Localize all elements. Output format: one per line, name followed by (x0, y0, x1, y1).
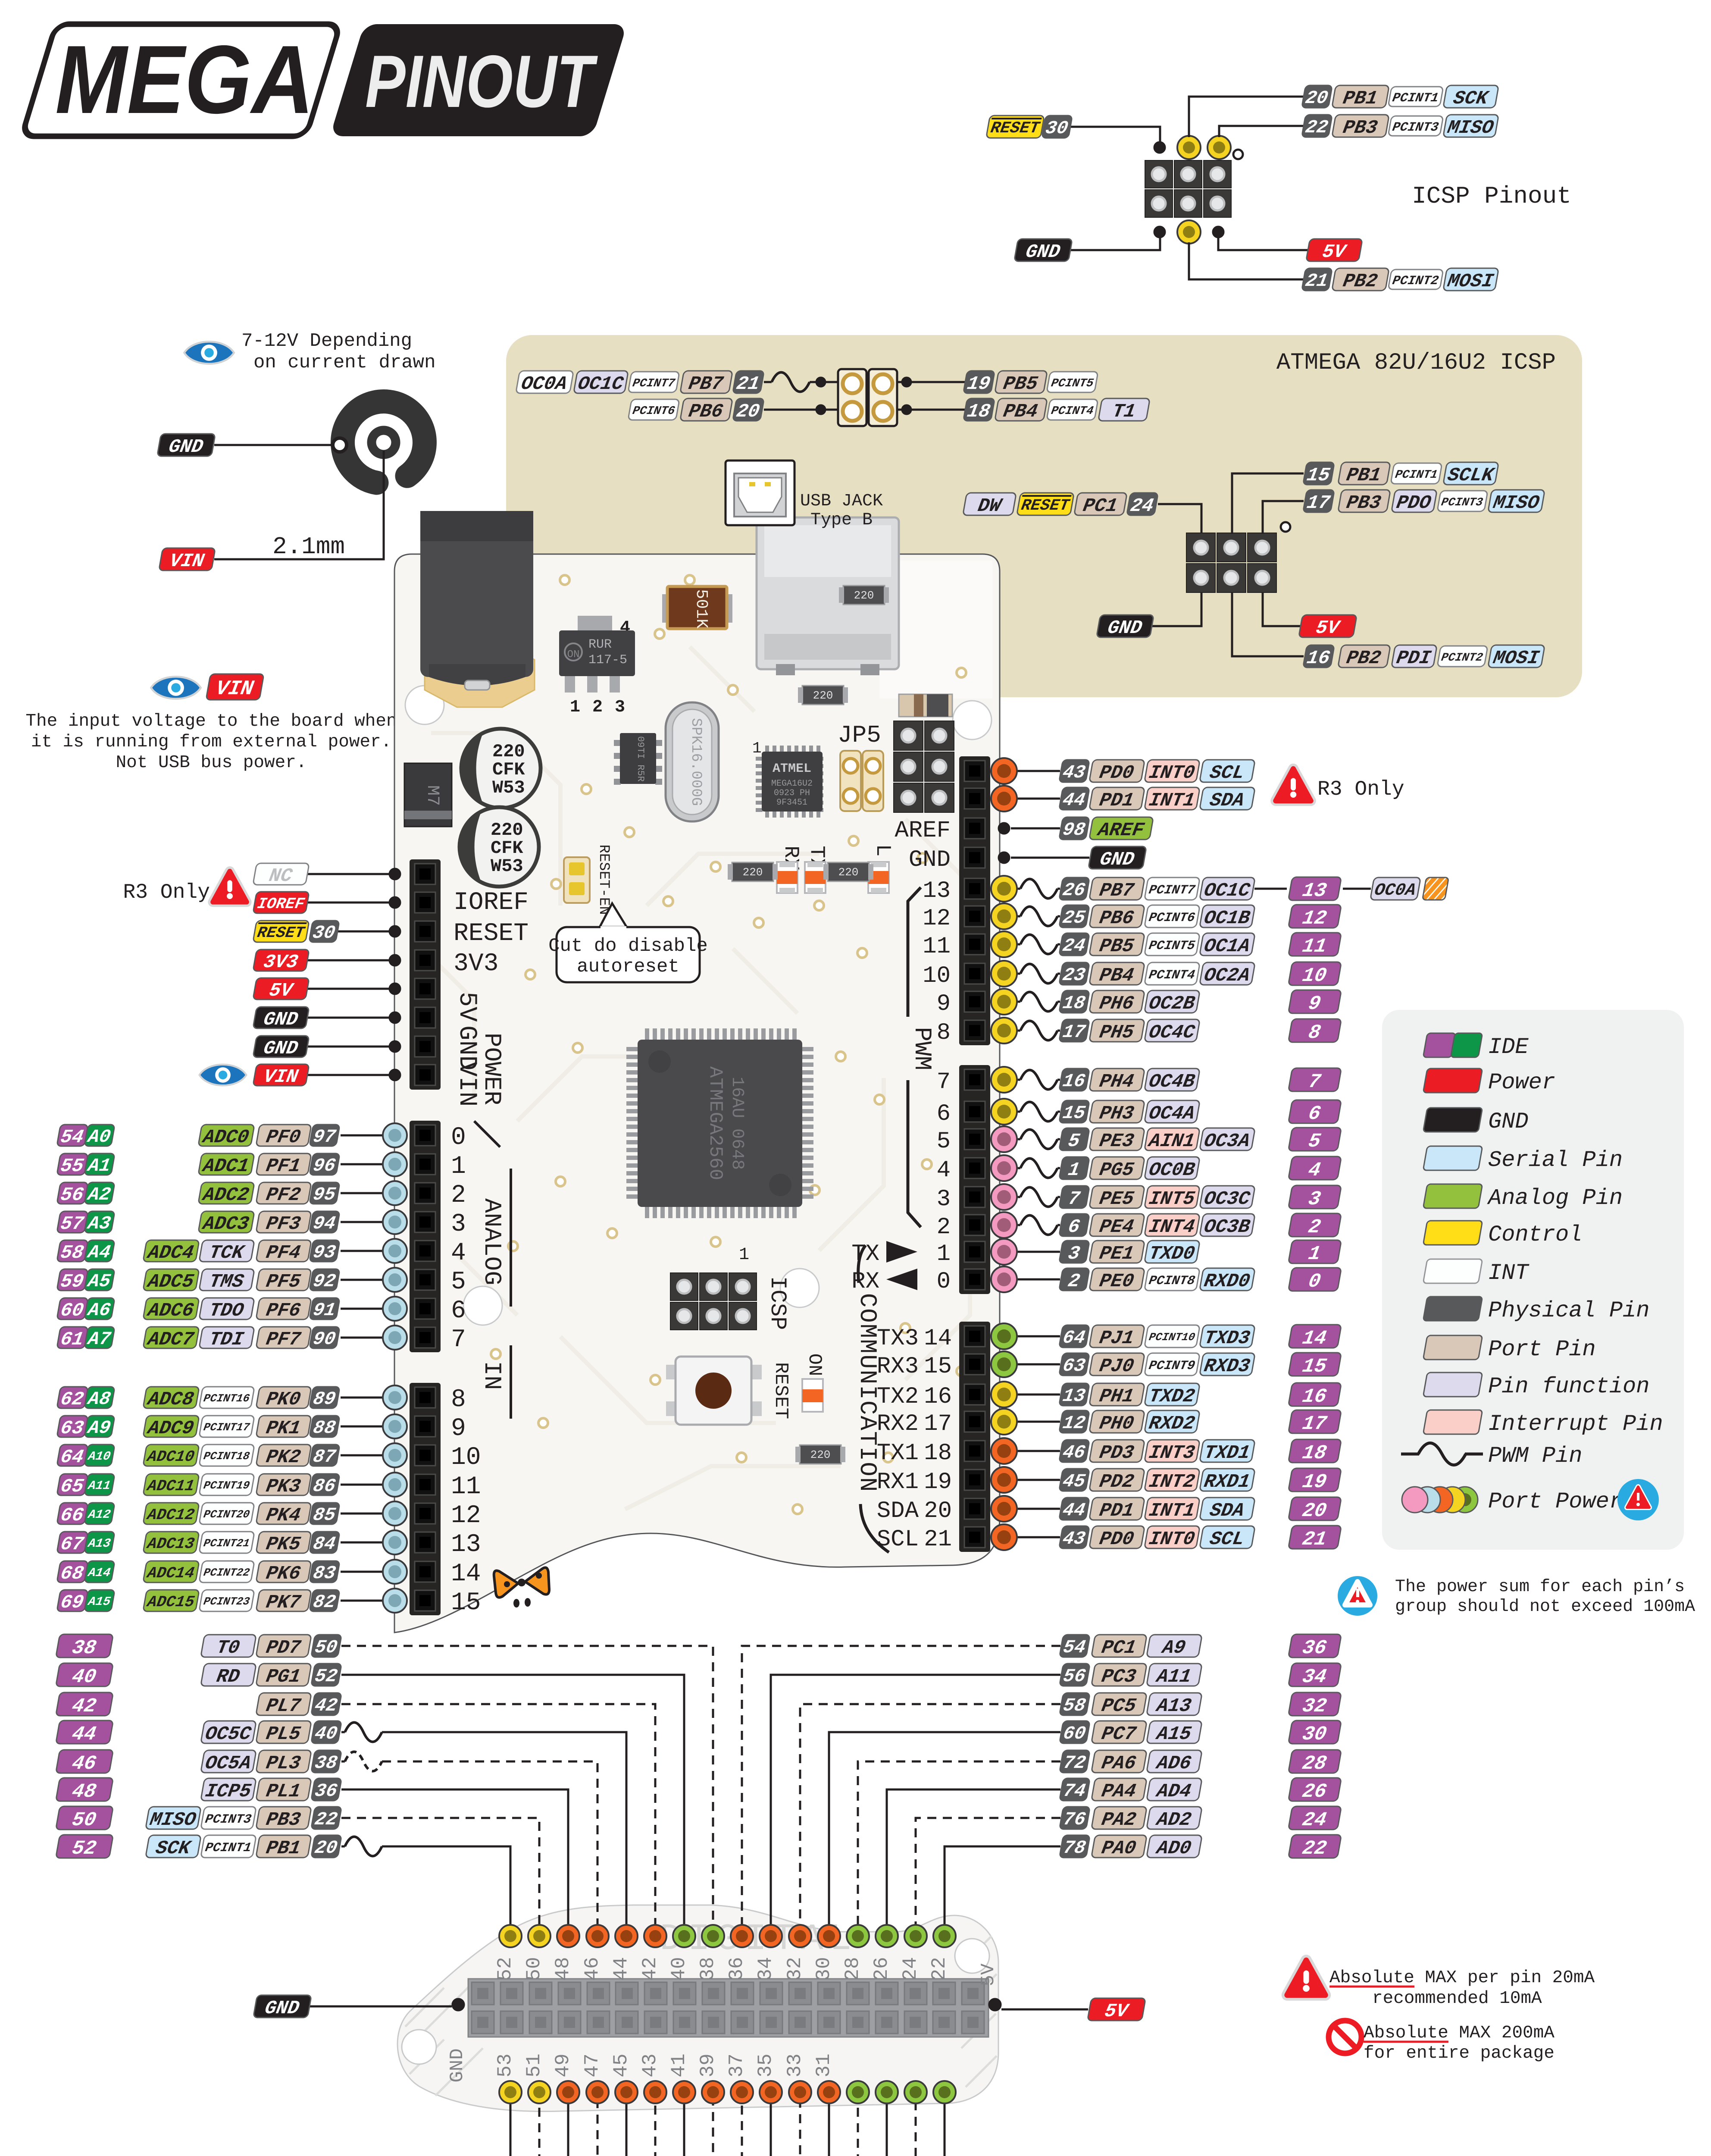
svg-text:Serial Pin: Serial Pin (1488, 1147, 1623, 1173)
svg-text:87: 87 (311, 1446, 338, 1467)
svg-text:64: 64 (1061, 1327, 1087, 1348)
svg-text:220: 220 (813, 689, 833, 702)
svg-text:86: 86 (311, 1476, 337, 1497)
svg-text:PD3: PD3 (1098, 1442, 1135, 1464)
svg-text:VIN: VIN (214, 677, 256, 701)
svg-text:36: 36 (726, 1957, 748, 1981)
svg-text:24: 24 (899, 1957, 922, 1981)
svg-text:21: 21 (924, 1526, 952, 1553)
svg-text:INT1: INT1 (1147, 1500, 1196, 1522)
svg-text:GND: GND (167, 436, 205, 458)
svg-text:19: 19 (1301, 1470, 1328, 1493)
svg-text:OC1B: OC1B (1202, 908, 1252, 929)
svg-text:220: 220 (743, 866, 763, 879)
svg-text:ICSP Pinout: ICSP Pinout (1412, 182, 1571, 210)
svg-text:POWER: POWER (478, 1033, 506, 1105)
svg-text:PF4: PF4 (264, 1242, 302, 1264)
svg-text:26: 26 (1061, 880, 1087, 901)
svg-text:PF2: PF2 (264, 1185, 302, 1206)
svg-text:IOREF: IOREF (256, 895, 306, 913)
svg-text:INT0: INT0 (1147, 1529, 1196, 1550)
svg-text:PCINT5: PCINT5 (1050, 377, 1095, 390)
svg-text:A9: A9 (85, 1417, 112, 1438)
svg-text:PK5: PK5 (264, 1534, 302, 1555)
svg-text:Physical Pin: Physical Pin (1488, 1298, 1649, 1323)
svg-text:PB5: PB5 (1098, 936, 1135, 957)
svg-text:20: 20 (1304, 88, 1329, 109)
svg-text:20: 20 (313, 1837, 339, 1858)
svg-text:PCINT2: PCINT2 (1440, 652, 1484, 664)
svg-text:25: 25 (1061, 907, 1087, 928)
svg-text:3: 3 (937, 1186, 951, 1213)
svg-text:8: 8 (937, 1020, 951, 1046)
svg-text:MOSI: MOSI (1491, 648, 1541, 669)
svg-text:PB5: PB5 (1001, 373, 1039, 395)
svg-text:PCINT5: PCINT5 (1148, 938, 1196, 953)
svg-text:PB7: PB7 (687, 373, 725, 395)
svg-text:PC1: PC1 (1081, 495, 1119, 517)
svg-text:72: 72 (1061, 1752, 1087, 1774)
svg-text:PCINT6: PCINT6 (1148, 910, 1196, 925)
svg-text:RXD1: RXD1 (1202, 1471, 1251, 1493)
svg-text:12: 12 (923, 906, 951, 932)
svg-text:MOSI: MOSI (1445, 271, 1495, 292)
svg-text:1: 1 (937, 1241, 951, 1267)
svg-text:R3 Only: R3 Only (123, 881, 210, 904)
svg-text:PE0: PE0 (1098, 1271, 1135, 1292)
svg-text:24: 24 (1129, 495, 1155, 517)
svg-text:59: 59 (59, 1271, 85, 1293)
svg-text:50: 50 (523, 1957, 545, 1981)
svg-text:9: 9 (451, 1415, 466, 1443)
svg-text:30: 30 (311, 922, 337, 943)
svg-text:PB6: PB6 (1098, 908, 1135, 929)
svg-text:PWM Pin: PWM Pin (1488, 1443, 1582, 1469)
svg-text:GND: GND (262, 1009, 300, 1031)
svg-text:15: 15 (1305, 465, 1332, 486)
svg-text:ICSP: ICSP (765, 1276, 790, 1330)
svg-text:PCINT8: PCINT8 (1148, 1273, 1196, 1288)
svg-text:A7: A7 (85, 1329, 113, 1350)
svg-text:38: 38 (313, 1752, 339, 1774)
svg-text:17: 17 (1305, 492, 1332, 514)
svg-text:MEGA: MEGA (55, 25, 314, 134)
svg-text:6: 6 (451, 1297, 466, 1325)
svg-text:RESET: RESET (454, 920, 529, 948)
svg-text:13: 13 (1061, 1385, 1087, 1407)
svg-text:NC: NC (267, 865, 294, 887)
svg-text:56: 56 (1061, 1666, 1087, 1687)
svg-text:PCINT2: PCINT2 (1391, 273, 1440, 288)
svg-text:PG5: PG5 (1098, 1159, 1135, 1181)
svg-text:90: 90 (311, 1329, 337, 1350)
svg-text:COMMUNICATION: COMMUNICATION (854, 1293, 881, 1493)
svg-text:95: 95 (311, 1184, 337, 1205)
svg-text:ON: ON (804, 1354, 825, 1376)
svg-text:0: 0 (451, 1124, 466, 1152)
svg-text:A15: A15 (1154, 1724, 1193, 1745)
svg-text:ADC8: ADC8 (145, 1389, 195, 1410)
svg-text:GND: GND (909, 847, 951, 873)
svg-text:RX1: RX1 (877, 1469, 919, 1495)
svg-text:USB JACK: USB JACK (800, 492, 883, 511)
svg-text:16: 16 (924, 1384, 952, 1410)
svg-text:52: 52 (70, 1837, 98, 1860)
svg-text:ADC5: ADC5 (145, 1271, 195, 1293)
svg-text:09TI R5R: 09TI R5R (635, 736, 646, 782)
svg-text:21: 21 (735, 373, 761, 395)
svg-text:PCINT19: PCINT19 (203, 1479, 251, 1492)
svg-text:TX: TX (851, 1241, 879, 1267)
svg-text:OC1C: OC1C (1202, 880, 1252, 902)
svg-text:ADC13: ADC13 (145, 1535, 196, 1553)
svg-text:VIN: VIN (262, 1066, 300, 1088)
svg-text:TXD3: TXD3 (1202, 1328, 1251, 1349)
svg-text:54: 54 (59, 1127, 85, 1148)
svg-text:GND: GND (1098, 849, 1136, 871)
svg-text:22: 22 (1304, 117, 1329, 138)
svg-text:PF5: PF5 (264, 1271, 302, 1293)
svg-text:13: 13 (923, 878, 951, 904)
svg-text:AIN1: AIN1 (1146, 1131, 1196, 1152)
svg-text:RXD3: RXD3 (1202, 1356, 1251, 1377)
svg-text:it is running from external po: it is running from external power. (31, 732, 392, 752)
svg-text:A1: A1 (85, 1155, 112, 1176)
svg-text:ATMEGA2560: ATMEGA2560 (704, 1066, 726, 1180)
svg-text:15: 15 (1061, 1103, 1087, 1124)
svg-text:AD2: AD2 (1154, 1809, 1193, 1831)
svg-text:Pin function: Pin function (1488, 1374, 1649, 1399)
svg-text:OC4C: OC4C (1147, 1022, 1197, 1044)
svg-text:ANALOG: ANALOG (478, 1198, 506, 1285)
svg-text:PG1: PG1 (264, 1666, 302, 1688)
svg-text:group should not exceed 100mA: group should not exceed 100mA (1395, 1597, 1695, 1617)
svg-text:15: 15 (451, 1589, 481, 1617)
svg-text:PB3: PB3 (1341, 117, 1379, 139)
svg-text:PF1: PF1 (264, 1156, 302, 1177)
svg-text:PJ0: PJ0 (1098, 1356, 1135, 1377)
svg-text:ADC7: ADC7 (145, 1329, 196, 1351)
svg-text:RESET: RESET (256, 924, 307, 942)
svg-text:TMS: TMS (207, 1271, 245, 1293)
svg-text:ADC0: ADC0 (200, 1127, 250, 1148)
svg-text:67: 67 (59, 1534, 86, 1555)
svg-text:RXD2: RXD2 (1147, 1413, 1196, 1435)
svg-text:ADC6: ADC6 (145, 1300, 195, 1322)
svg-text:98: 98 (1061, 819, 1087, 840)
svg-text:0: 0 (937, 1269, 951, 1295)
svg-text:TX3: TX3 (877, 1326, 919, 1352)
svg-text:PH0: PH0 (1098, 1413, 1135, 1435)
svg-text:17: 17 (1301, 1412, 1329, 1435)
svg-text:69: 69 (59, 1592, 85, 1614)
svg-text:16AU 0648: 16AU 0648 (727, 1077, 747, 1170)
svg-text:for entire package: for entire package (1364, 2043, 1555, 2063)
svg-text:2: 2 (592, 698, 603, 717)
svg-text:60: 60 (59, 1300, 85, 1322)
svg-text:RESET-EN: RESET-EN (595, 844, 612, 915)
svg-text:CFK: CFK (491, 838, 523, 859)
svg-text:57: 57 (59, 1213, 86, 1235)
svg-text:3V3: 3V3 (454, 950, 498, 978)
svg-text:5: 5 (451, 1268, 466, 1296)
svg-text:0923 PH: 0923 PH (774, 788, 810, 798)
svg-text:PCINT18: PCINT18 (203, 1450, 251, 1463)
svg-text:PWM: PWM (908, 1027, 936, 1071)
svg-text:OC1C: OC1C (576, 373, 625, 395)
svg-text:7: 7 (937, 1069, 951, 1095)
svg-text:10: 10 (451, 1444, 481, 1472)
svg-text:23: 23 (1061, 965, 1087, 986)
svg-text:16: 16 (1301, 1385, 1328, 1408)
svg-text:PCINT23: PCINT23 (203, 1595, 251, 1608)
svg-text:63: 63 (59, 1418, 85, 1439)
svg-text:PK3: PK3 (264, 1476, 302, 1498)
svg-text:INT2: INT2 (1147, 1471, 1196, 1493)
svg-text:PCINT17: PCINT17 (203, 1421, 251, 1434)
svg-text:The power sum for each pin’s: The power sum for each pin’s (1395, 1577, 1685, 1597)
svg-text:55: 55 (59, 1156, 85, 1177)
svg-text:19: 19 (965, 373, 992, 395)
svg-text:INT1: INT1 (1147, 790, 1196, 812)
svg-text:PK6: PK6 (264, 1563, 302, 1585)
svg-text:SDA: SDA (1208, 790, 1246, 812)
svg-text:64: 64 (59, 1447, 85, 1468)
svg-text:TXD0: TXD0 (1147, 1243, 1196, 1265)
svg-text:PL3: PL3 (264, 1753, 302, 1774)
svg-text:GND: GND (1488, 1109, 1529, 1134)
svg-text:ADC1: ADC1 (200, 1156, 250, 1177)
svg-text:PCINT1: PCINT1 (204, 1840, 253, 1855)
svg-text:58: 58 (59, 1242, 85, 1264)
svg-text:A3: A3 (85, 1213, 112, 1234)
svg-text:30: 30 (1044, 118, 1070, 139)
svg-text:VIN: VIN (453, 1062, 481, 1106)
svg-text:32: 32 (784, 1957, 806, 1981)
svg-text:44: 44 (610, 1957, 632, 1981)
svg-text:T1: T1 (1110, 401, 1137, 423)
svg-text:PB1: PB1 (1341, 88, 1379, 110)
svg-text:SCL: SCL (1208, 762, 1246, 784)
svg-text:61: 61 (59, 1329, 85, 1351)
svg-text:GND: GND (262, 1038, 300, 1059)
svg-text:W53: W53 (491, 856, 523, 877)
svg-text:TCK: TCK (207, 1242, 247, 1264)
svg-text:82: 82 (311, 1592, 337, 1613)
svg-text:SCK: SCK (154, 1838, 193, 1859)
svg-text:21: 21 (1304, 270, 1329, 291)
svg-text:PL5: PL5 (264, 1724, 302, 1745)
svg-text:Power: Power (1488, 1070, 1555, 1095)
svg-text:SCLK: SCLK (1446, 465, 1497, 486)
svg-text:PC3: PC3 (1100, 1666, 1138, 1688)
svg-text:18: 18 (1061, 993, 1087, 1014)
svg-text:36: 36 (313, 1780, 339, 1802)
svg-text:96: 96 (311, 1155, 337, 1176)
svg-text:Control: Control (1488, 1222, 1582, 1247)
svg-text:PK7: PK7 (264, 1592, 303, 1614)
svg-text:OC2A: OC2A (1202, 965, 1251, 987)
svg-text:RD: RD (215, 1666, 241, 1688)
svg-text:52: 52 (494, 1957, 516, 1981)
svg-text:39: 39 (697, 2053, 719, 2077)
svg-text:CFK: CFK (492, 759, 525, 780)
svg-text:46: 46 (70, 1752, 98, 1775)
svg-text:AD6: AD6 (1154, 1753, 1193, 1774)
svg-text:PK1: PK1 (264, 1418, 302, 1439)
svg-text:24: 24 (1301, 1808, 1328, 1831)
svg-text:220: 220 (491, 820, 523, 840)
svg-text:PC5: PC5 (1100, 1695, 1138, 1717)
svg-text:AD4: AD4 (1154, 1781, 1193, 1802)
svg-text:97: 97 (311, 1126, 338, 1147)
svg-text:45: 45 (610, 2053, 632, 2077)
svg-text:PJ1: PJ1 (1098, 1328, 1135, 1349)
svg-text:117-5: 117-5 (588, 653, 627, 667)
svg-text:PB2: PB2 (1345, 648, 1383, 669)
svg-text:PF6: PF6 (264, 1300, 302, 1322)
svg-text:A14: A14 (86, 1566, 112, 1580)
svg-text:TXD1: TXD1 (1202, 1442, 1251, 1464)
svg-text:40: 40 (313, 1723, 339, 1744)
svg-text:43: 43 (639, 2053, 661, 2077)
svg-text:PH1: PH1 (1098, 1386, 1135, 1407)
svg-text:41: 41 (668, 2053, 690, 2077)
svg-text:3V3: 3V3 (262, 952, 300, 973)
svg-text:PE3: PE3 (1098, 1131, 1135, 1152)
svg-text:5: 5 (937, 1128, 951, 1155)
svg-text:20: 20 (1301, 1499, 1328, 1522)
svg-text:PCINT9: PCINT9 (1148, 1358, 1196, 1373)
svg-text:IOREF: IOREF (454, 889, 529, 917)
svg-text:PA2: PA2 (1100, 1809, 1138, 1831)
svg-text:Not USB bus power.: Not USB bus power. (116, 753, 307, 773)
svg-text:36: 36 (1301, 1636, 1328, 1659)
svg-text:TX2: TX2 (877, 1384, 919, 1410)
svg-text:4: 4 (451, 1239, 466, 1267)
svg-text:PA0: PA0 (1100, 1838, 1138, 1859)
svg-text:W53: W53 (492, 777, 525, 798)
svg-text:OC0A: OC0A (519, 373, 569, 395)
svg-text:1: 1 (739, 1245, 749, 1265)
svg-text:SCL: SCL (1208, 1529, 1246, 1550)
svg-text:PH4: PH4 (1098, 1071, 1135, 1093)
svg-text:PDI: PDI (1395, 648, 1433, 669)
svg-text:OC3C: OC3C (1202, 1188, 1252, 1210)
svg-text:33: 33 (784, 2053, 806, 2077)
svg-text:18: 18 (965, 401, 992, 423)
svg-text:50: 50 (70, 1808, 98, 1831)
svg-text:AREF: AREF (895, 818, 951, 844)
svg-text:MISO: MISO (1491, 492, 1541, 514)
svg-text:16: 16 (1061, 1071, 1087, 1092)
svg-text:47: 47 (581, 2053, 604, 2077)
svg-text:A12: A12 (86, 1507, 112, 1522)
svg-text:PF3: PF3 (264, 1213, 302, 1235)
svg-text:A11: A11 (86, 1479, 112, 1493)
svg-text:INT5: INT5 (1147, 1188, 1196, 1210)
svg-text:89: 89 (311, 1388, 337, 1410)
svg-text:7: 7 (451, 1326, 466, 1354)
svg-text:PB1: PB1 (264, 1838, 302, 1859)
svg-text:OC2B: OC2B (1147, 993, 1197, 1015)
svg-text:IDE: IDE (1488, 1034, 1529, 1060)
svg-text:52: 52 (313, 1666, 339, 1687)
svg-text:PB4: PB4 (1001, 401, 1039, 423)
svg-text:74: 74 (1061, 1780, 1087, 1802)
svg-text:A10: A10 (86, 1449, 112, 1463)
svg-text:SCK: SCK (1451, 88, 1491, 110)
svg-text:8: 8 (451, 1386, 466, 1414)
svg-text:12: 12 (1301, 907, 1328, 930)
svg-text:L: L (871, 844, 894, 857)
svg-text:84: 84 (311, 1533, 337, 1554)
svg-text:PD2: PD2 (1098, 1471, 1135, 1493)
svg-text:RESET: RESET (770, 1362, 791, 1419)
svg-text:PINOUT: PINOUT (365, 40, 598, 123)
svg-text:PCINT4: PCINT4 (1148, 968, 1196, 982)
svg-text:MISO: MISO (1445, 117, 1495, 139)
svg-text:43: 43 (1061, 762, 1087, 783)
svg-text:PF0: PF0 (264, 1127, 302, 1148)
svg-text:PD1: PD1 (1098, 790, 1135, 812)
svg-text:TDI: TDI (207, 1329, 245, 1351)
svg-text:15: 15 (924, 1354, 952, 1380)
svg-text:recommended 10mA: recommended 10mA (1372, 1989, 1542, 2009)
svg-text:JP5: JP5 (838, 721, 881, 749)
svg-text:PD0: PD0 (1098, 762, 1135, 784)
svg-text:220: 220 (854, 589, 874, 602)
svg-text:PE1: PE1 (1098, 1243, 1135, 1265)
svg-text:PE4: PE4 (1098, 1216, 1135, 1238)
svg-text:Port Power: Port Power (1488, 1489, 1623, 1514)
svg-text:ON: ON (567, 649, 580, 661)
svg-text:ADC10: ADC10 (145, 1448, 196, 1466)
svg-text:OC0A: OC0A (1373, 881, 1417, 900)
svg-text:66: 66 (59, 1505, 85, 1526)
svg-text:Port Pin: Port Pin (1488, 1337, 1596, 1362)
svg-text:63: 63 (1061, 1355, 1087, 1376)
svg-text:RX3: RX3 (877, 1354, 919, 1380)
svg-text:40: 40 (70, 1665, 98, 1688)
svg-text:RESET: RESET (1020, 497, 1072, 515)
svg-text:2: 2 (937, 1214, 951, 1241)
svg-text:17: 17 (924, 1411, 952, 1437)
svg-text:GND: GND (447, 2048, 468, 2082)
svg-text:14: 14 (1301, 1327, 1328, 1350)
svg-text:13: 13 (451, 1531, 481, 1559)
svg-text:2: 2 (451, 1181, 466, 1210)
svg-text:12: 12 (1061, 1413, 1087, 1434)
svg-text:Cut do disable: Cut do disable (548, 935, 708, 957)
svg-text:A9: A9 (1159, 1637, 1187, 1659)
svg-text:A8: A8 (85, 1388, 112, 1410)
svg-text:SPK16.000G: SPK16.000G (688, 718, 704, 806)
svg-text:78: 78 (1061, 1837, 1087, 1858)
svg-text:220: 220 (838, 866, 859, 879)
svg-text:A2: A2 (85, 1184, 112, 1205)
svg-text:53: 53 (494, 2053, 516, 2077)
svg-text:RUR: RUR (588, 637, 612, 652)
svg-text:24: 24 (1061, 935, 1087, 956)
svg-text:OC0B: OC0B (1147, 1159, 1197, 1181)
svg-text:PCINT3: PCINT3 (1391, 120, 1440, 135)
svg-text:94: 94 (311, 1213, 337, 1234)
svg-text:SDA: SDA (1208, 1500, 1246, 1522)
svg-text:91: 91 (311, 1300, 337, 1321)
svg-text:PCINT21: PCINT21 (203, 1537, 251, 1550)
svg-text:ADC11: ADC11 (145, 1477, 196, 1495)
